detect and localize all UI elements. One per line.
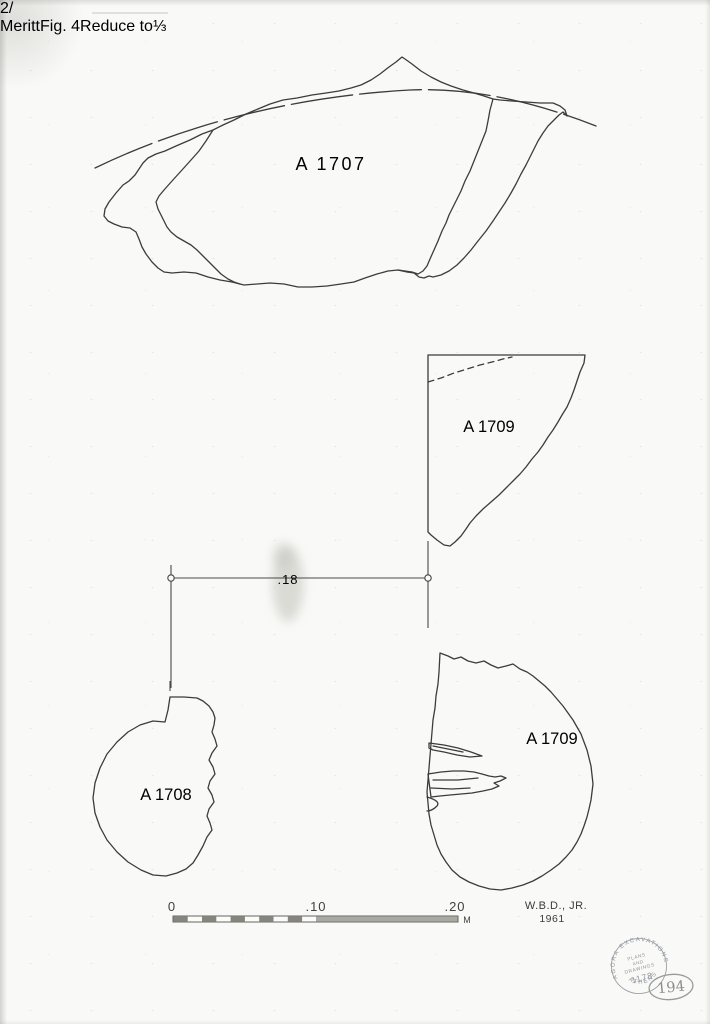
- signature-year: 1961: [539, 913, 564, 925]
- fragment-a1707-break-line-left: [156, 130, 240, 284]
- drawing-canvas: A 1707 A 1709 .18 A 1708 A 1709 0 .10 .2…: [0, 0, 710, 1024]
- label-a1708: A 1708: [140, 786, 191, 804]
- scale-tick-10: .10: [305, 899, 326, 914]
- fragment-a1709-upper-outline: [428, 355, 585, 546]
- strut-section-lower: [428, 771, 506, 797]
- scale-tick-0: 0: [168, 899, 176, 914]
- dimension-endpoint-right: [425, 575, 431, 581]
- scale-bar-right-half: [316, 917, 458, 922]
- label-a1707: A 1707: [295, 154, 366, 174]
- label-a1709-upper: A 1709: [463, 418, 514, 436]
- fragment-a1707-break-line-right: [398, 99, 493, 274]
- scale-unit: M: [463, 915, 471, 925]
- signature-name: W.B.D., JR.: [525, 900, 587, 912]
- scale-bar: 0 .10 .20 M: [168, 899, 471, 925]
- dimension-endpoint-left: [168, 575, 174, 581]
- label-a1709-lower: A 1709: [526, 730, 577, 748]
- scanned-drawing-sheet: A 1707 A 1709 .18 A 1708 A 1709 0 .10 .2…: [0, 0, 710, 1024]
- scale-tick-20: .20: [444, 899, 465, 914]
- page-number: 194: [657, 979, 686, 998]
- dimension-label: .18: [277, 572, 298, 587]
- fragment-a1709-upper-dashed-break: [428, 357, 512, 382]
- strut-section-lower-vein-1: [433, 778, 478, 780]
- strut-section-lower-vein-2: [431, 788, 470, 789]
